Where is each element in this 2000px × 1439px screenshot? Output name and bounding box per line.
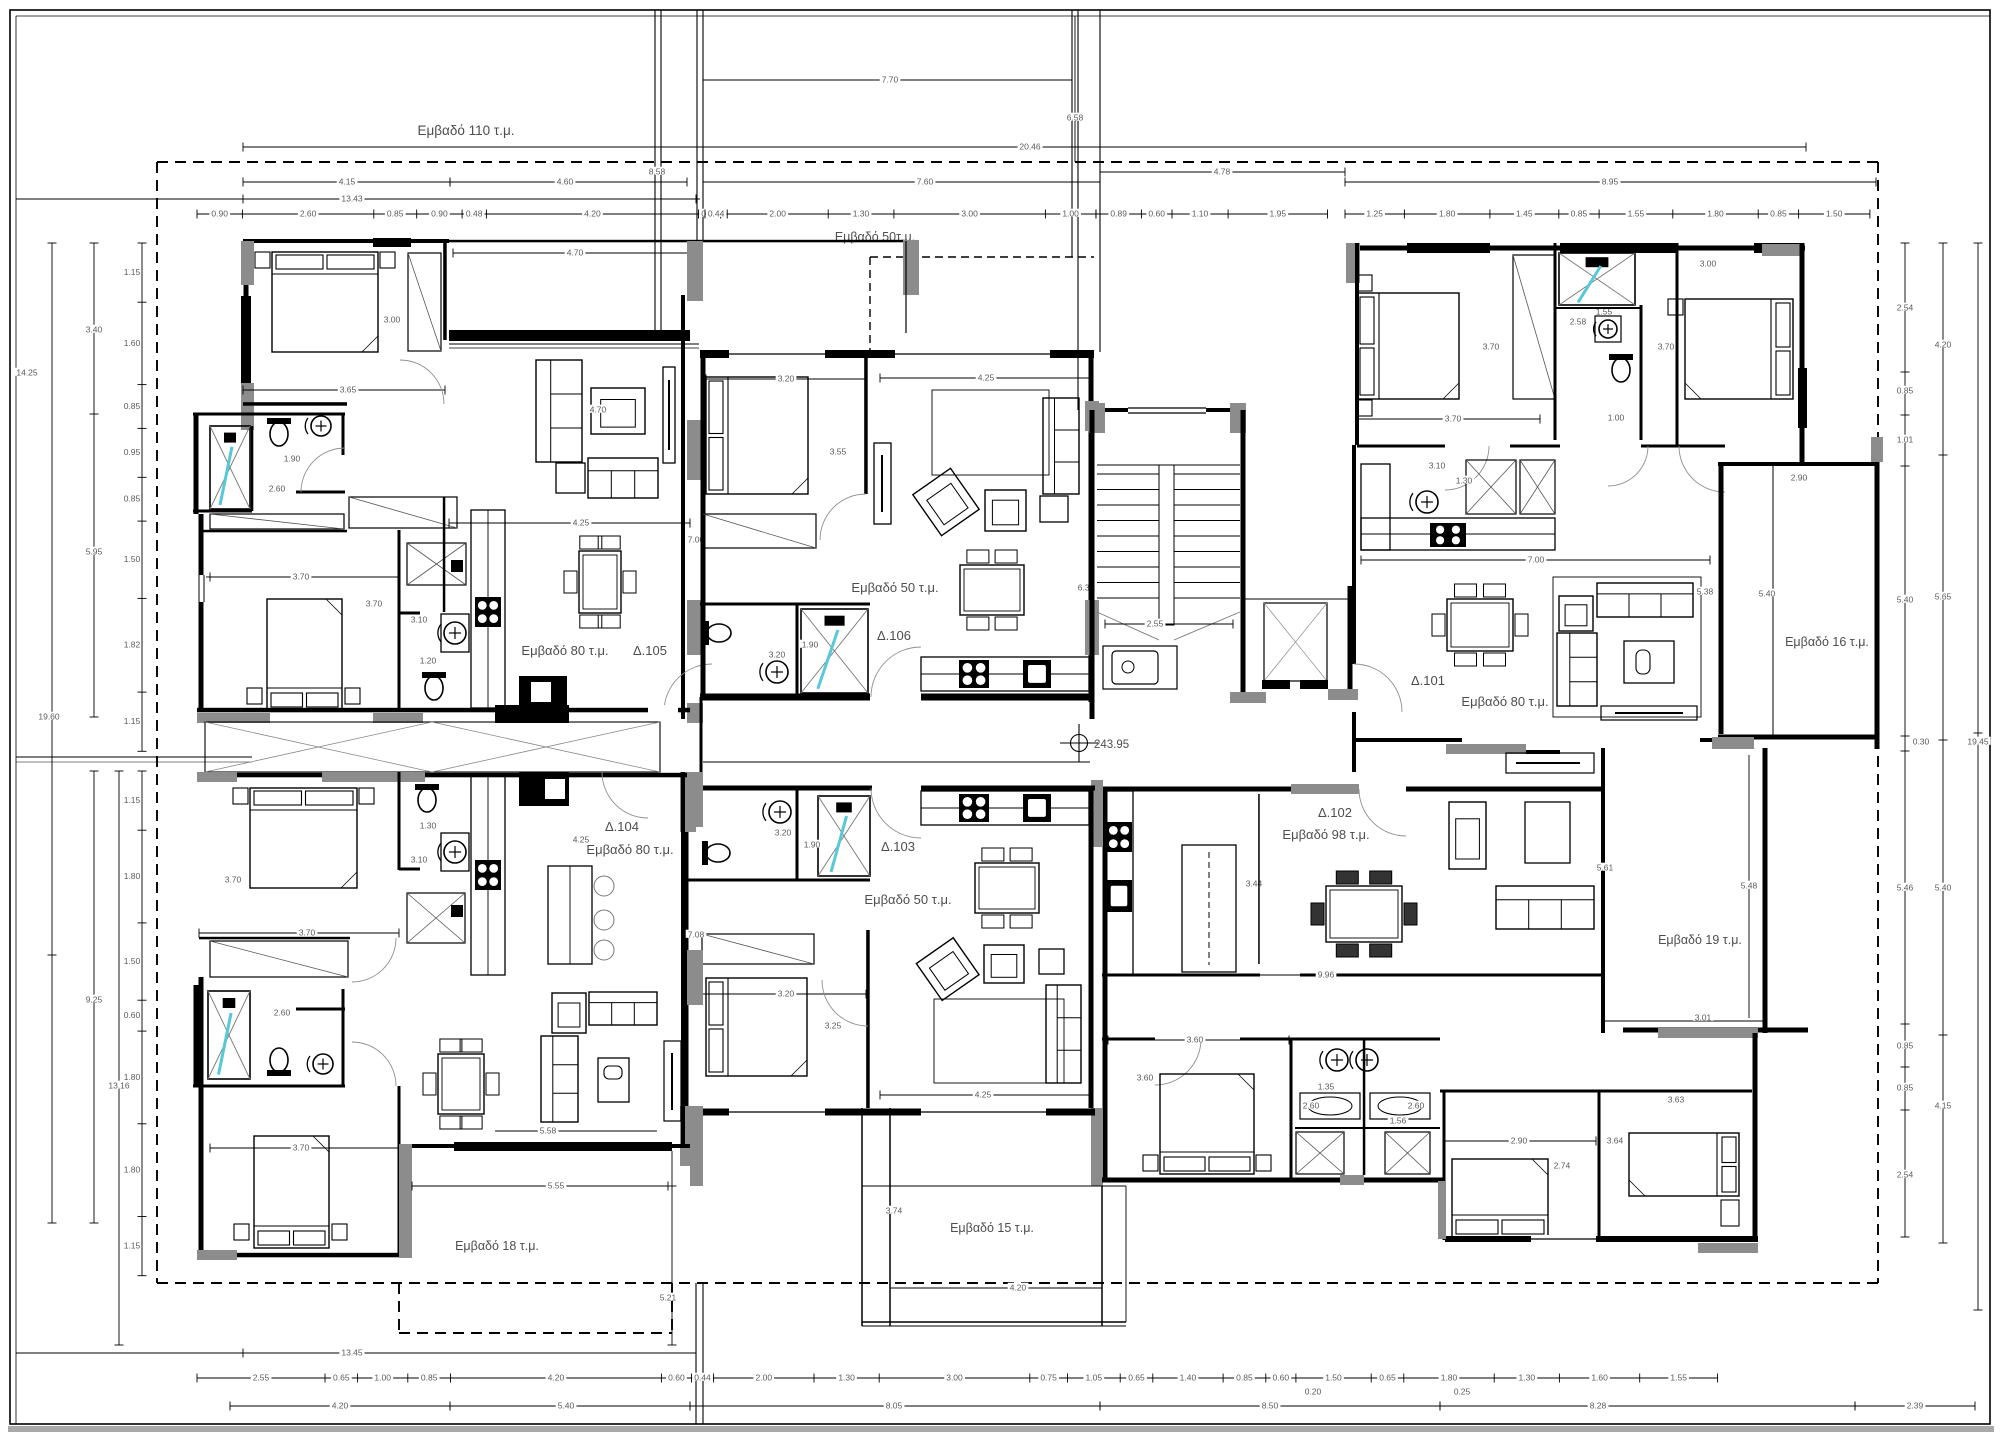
svg-text:8.28: 8.28 (1590, 1400, 1607, 1410)
svg-text:0.65: 0.65 (1128, 1372, 1145, 1382)
svg-text:0.90: 0.90 (431, 208, 448, 218)
svg-text:0.85: 0.85 (1236, 1372, 1253, 1382)
svg-text:3.60: 3.60 (1137, 1072, 1154, 1082)
svg-text:3.70: 3.70 (1483, 341, 1500, 351)
svg-text:8.58: 8.58 (649, 166, 666, 176)
svg-text:4.15: 4.15 (339, 176, 356, 186)
svg-text:Εμβαδό 80 τ.μ.: Εμβαδό 80 τ.μ. (1461, 694, 1548, 709)
svg-text:0.85: 0.85 (124, 401, 141, 411)
svg-text:2.00: 2.00 (756, 1372, 773, 1382)
svg-text:3.55: 3.55 (830, 446, 847, 456)
svg-text:0.30: 0.30 (1913, 736, 1930, 746)
svg-text:3.40: 3.40 (86, 324, 103, 334)
svg-text:243.95: 243.95 (1094, 739, 1129, 751)
svg-text:9.96: 9.96 (1318, 969, 1335, 979)
svg-text:Εμβαδό 19 τ.μ.: Εμβαδό 19 τ.μ. (1658, 933, 1742, 947)
svg-text:4.15: 4.15 (1935, 1100, 1952, 1110)
svg-text:1.50: 1.50 (1826, 208, 1843, 218)
svg-text:Εμβαδό 50 τ.μ.: Εμβαδό 50 τ.μ. (864, 892, 951, 907)
svg-text:4.20: 4.20 (1010, 1282, 1027, 1292)
svg-text:1.80: 1.80 (1707, 208, 1724, 218)
svg-text:3.63: 3.63 (1668, 1094, 1685, 1104)
svg-text:0.25: 0.25 (1454, 1386, 1471, 1396)
svg-text:2.90: 2.90 (1511, 1135, 1528, 1145)
svg-text:4.25: 4.25 (975, 1089, 992, 1099)
svg-text:Δ.103: Δ.103 (881, 839, 915, 854)
svg-text:3.70: 3.70 (1658, 341, 1675, 351)
svg-text:7.08: 7.08 (688, 929, 705, 939)
svg-text:2.55: 2.55 (253, 1372, 270, 1382)
svg-text:1.80: 1.80 (1441, 1372, 1458, 1382)
svg-text:4.60: 4.60 (557, 176, 574, 186)
svg-text:2.58: 2.58 (1570, 316, 1587, 326)
svg-text:5.40: 5.40 (1935, 882, 1952, 892)
svg-text:0.90: 0.90 (211, 208, 228, 218)
svg-text:3.70: 3.70 (293, 1142, 310, 1152)
svg-text:7.00: 7.00 (1528, 554, 1545, 564)
svg-text:3.74: 3.74 (886, 1205, 903, 1215)
svg-text:0.85: 0.85 (124, 494, 141, 504)
svg-text:0.44: 0.44 (708, 208, 725, 218)
svg-text:2.74: 2.74 (1554, 1160, 1571, 1170)
svg-text:Εμβαδό 98 τ.μ.: Εμβαδό 98 τ.μ. (1282, 827, 1369, 842)
svg-text:2.60: 2.60 (1408, 1100, 1425, 1110)
svg-text:5.48: 5.48 (1741, 880, 1758, 890)
svg-text:5.58: 5.58 (540, 1125, 557, 1135)
svg-text:Δ.105: Δ.105 (633, 643, 667, 658)
svg-text:0.85: 0.85 (1897, 1040, 1914, 1050)
svg-text:3.10: 3.10 (1429, 460, 1446, 470)
svg-text:0.85: 0.85 (1897, 1082, 1914, 1092)
svg-text:2.90: 2.90 (1791, 472, 1808, 482)
svg-text:1.55: 1.55 (1670, 1372, 1687, 1382)
svg-text:1.10: 1.10 (1192, 208, 1209, 218)
svg-text:2.60: 2.60 (300, 208, 317, 218)
svg-text:0.85: 0.85 (1897, 385, 1914, 395)
svg-text:1.30: 1.30 (1456, 475, 1473, 485)
svg-text:4.20: 4.20 (584, 208, 601, 218)
svg-text:13.16: 13.16 (108, 1080, 130, 1090)
svg-text:4.78: 4.78 (1214, 166, 1231, 176)
svg-text:0.60: 0.60 (124, 1010, 141, 1020)
svg-text:1.45: 1.45 (1516, 208, 1533, 218)
svg-text:2.39: 2.39 (1907, 1400, 1924, 1410)
svg-text:7.70: 7.70 (882, 74, 899, 84)
svg-text:1.60: 1.60 (1591, 1372, 1608, 1382)
svg-text:1.40: 1.40 (1180, 1372, 1197, 1382)
svg-text:1.30: 1.30 (838, 1372, 855, 1382)
svg-text:1.80: 1.80 (1439, 208, 1456, 218)
svg-text:1.55: 1.55 (1628, 208, 1645, 218)
svg-text:1.50: 1.50 (124, 554, 141, 564)
svg-text:2.54: 2.54 (1897, 302, 1914, 312)
svg-text:20.46: 20.46 (1019, 141, 1041, 151)
svg-text:0.60: 0.60 (668, 1372, 685, 1382)
svg-text:0.60: 0.60 (1148, 208, 1165, 218)
svg-text:5.55: 5.55 (548, 1180, 565, 1190)
svg-text:3.00: 3.00 (946, 1372, 963, 1382)
svg-text:2.60: 2.60 (1303, 1100, 1320, 1110)
svg-text:0.48: 0.48 (466, 208, 483, 218)
svg-text:1.95: 1.95 (1270, 208, 1287, 218)
svg-text:4.20: 4.20 (332, 1400, 349, 1410)
svg-text:0.44: 0.44 (694, 1372, 711, 1382)
svg-text:8.50: 8.50 (1262, 1400, 1279, 1410)
svg-text:19.45: 19.45 (1967, 736, 1989, 746)
svg-text:2.60: 2.60 (269, 483, 286, 493)
svg-text:5.38: 5.38 (1697, 586, 1714, 596)
svg-text:6.58: 6.58 (1067, 112, 1084, 122)
svg-text:0.75: 0.75 (1040, 1372, 1057, 1382)
svg-text:0.20: 0.20 (1305, 1386, 1322, 1396)
svg-text:3.70: 3.70 (366, 598, 383, 608)
svg-text:5.46: 5.46 (1897, 882, 1914, 892)
svg-text:Εμβαδό 50 τ.μ.: Εμβαδό 50 τ.μ. (851, 580, 938, 595)
svg-text:1.01: 1.01 (1897, 434, 1914, 444)
svg-text:9.25: 9.25 (86, 994, 103, 1004)
svg-text:1.35: 1.35 (1318, 1081, 1335, 1091)
svg-text:1.25: 1.25 (1366, 208, 1383, 218)
svg-text:4.25: 4.25 (978, 372, 995, 382)
svg-text:Εμβαδό 18 τ.μ.: Εμβαδό 18 τ.μ. (455, 1239, 539, 1253)
svg-text:5.21: 5.21 (660, 1292, 677, 1302)
svg-text:1.20: 1.20 (420, 655, 437, 665)
svg-text:4.70: 4.70 (590, 404, 607, 414)
svg-text:0.65: 0.65 (333, 1372, 350, 1382)
svg-text:0.60: 0.60 (1273, 1372, 1290, 1382)
svg-text:1.82: 1.82 (124, 640, 141, 650)
svg-text:0.85: 0.85 (1571, 208, 1588, 218)
svg-text:3.20: 3.20 (775, 827, 792, 837)
svg-text:2.55: 2.55 (1147, 618, 1164, 628)
svg-text:0.89: 0.89 (1110, 208, 1127, 218)
svg-text:1.15: 1.15 (124, 716, 141, 726)
svg-text:0.85: 0.85 (1770, 208, 1787, 218)
svg-text:2.54: 2.54 (1897, 1169, 1914, 1179)
svg-text:1.90: 1.90 (802, 639, 819, 649)
svg-text:8.05: 8.05 (886, 1400, 903, 1410)
svg-text:3.20: 3.20 (778, 988, 795, 998)
svg-text:3.60: 3.60 (1187, 1034, 1204, 1044)
svg-text:4.20: 4.20 (548, 1372, 565, 1382)
svg-text:3.25: 3.25 (825, 1020, 842, 1030)
svg-text:5.95: 5.95 (86, 546, 103, 556)
svg-text:0.85: 0.85 (421, 1372, 438, 1382)
svg-text:1.90: 1.90 (284, 453, 301, 463)
svg-text:Δ.102: Δ.102 (1318, 805, 1352, 820)
svg-text:3.70: 3.70 (225, 874, 242, 884)
svg-text:2.60: 2.60 (274, 1007, 291, 1017)
svg-text:3.20: 3.20 (769, 649, 786, 659)
svg-text:1.30: 1.30 (853, 208, 870, 218)
svg-text:5.40: 5.40 (1897, 594, 1914, 604)
svg-text:19.60: 19.60 (38, 711, 60, 721)
svg-text:5.65: 5.65 (1935, 591, 1952, 601)
svg-text:13.43: 13.43 (341, 193, 363, 203)
svg-text:Δ.106: Δ.106 (877, 628, 911, 643)
svg-text:Εμβαδό 15 τ.μ.: Εμβαδό 15 τ.μ. (950, 1221, 1034, 1235)
svg-text:3.70: 3.70 (1445, 413, 1462, 423)
svg-text:1.15: 1.15 (124, 267, 141, 277)
svg-text:1.15: 1.15 (124, 1241, 141, 1251)
svg-text:Εμβαδό 80 τ.μ.: Εμβαδό 80 τ.μ. (586, 842, 673, 857)
svg-text:14.25: 14.25 (16, 367, 38, 377)
svg-text:5.61: 5.61 (1597, 862, 1614, 872)
svg-text:4.25: 4.25 (573, 517, 590, 527)
svg-text:3.10: 3.10 (411, 614, 428, 624)
svg-text:3.01: 3.01 (1695, 1012, 1712, 1022)
svg-text:1.30: 1.30 (1519, 1372, 1536, 1382)
svg-text:1.50: 1.50 (1325, 1372, 1342, 1382)
svg-text:1.15: 1.15 (124, 795, 141, 805)
svg-text:1.00: 1.00 (1062, 208, 1079, 218)
svg-text:4.20: 4.20 (1935, 339, 1952, 349)
svg-text:1.80: 1.80 (124, 1165, 141, 1175)
svg-text:1.00: 1.00 (1608, 412, 1625, 422)
svg-text:1.80: 1.80 (124, 1072, 141, 1082)
svg-text:3.10: 3.10 (411, 854, 428, 864)
svg-text:3.70: 3.70 (293, 571, 310, 581)
svg-text:1.05: 1.05 (1086, 1372, 1103, 1382)
svg-text:3.70: 3.70 (299, 927, 316, 937)
svg-text:3.20: 3.20 (778, 373, 795, 383)
svg-text:3.00: 3.00 (384, 314, 401, 324)
svg-text:4.70: 4.70 (567, 247, 584, 257)
svg-text:8.95: 8.95 (1602, 176, 1619, 186)
svg-text:0.65: 0.65 (1379, 1372, 1396, 1382)
svg-text:Εμβαδό 80 τ.μ.: Εμβαδό 80 τ.μ. (521, 643, 608, 658)
svg-text:3.64: 3.64 (1607, 1135, 1624, 1145)
svg-text:1.00: 1.00 (374, 1372, 391, 1382)
svg-text:Εμβαδό 110 τ.μ.: Εμβαδό 110 τ.μ. (417, 123, 514, 138)
svg-text:2.00: 2.00 (769, 208, 786, 218)
svg-text:0.95: 0.95 (124, 447, 141, 457)
svg-text:5.40: 5.40 (1759, 588, 1776, 598)
svg-text:5.40: 5.40 (558, 1400, 575, 1410)
svg-text:3.65: 3.65 (340, 384, 357, 394)
svg-text:1.50: 1.50 (124, 956, 141, 966)
svg-text:3.44: 3.44 (1246, 878, 1263, 888)
svg-text:1.90: 1.90 (804, 839, 821, 849)
svg-text:3.00: 3.00 (1700, 258, 1717, 268)
svg-text:1.80: 1.80 (124, 871, 141, 881)
svg-text:Δ.104: Δ.104 (605, 819, 639, 834)
svg-text:13.45: 13.45 (341, 1347, 363, 1357)
svg-text:Δ.101: Δ.101 (1411, 673, 1445, 688)
svg-text:1.60: 1.60 (124, 338, 141, 348)
svg-text:7.60: 7.60 (917, 176, 934, 186)
svg-text:1.30: 1.30 (420, 820, 437, 830)
svg-text:3.00: 3.00 (961, 208, 978, 218)
svg-text:1.56: 1.56 (1390, 1115, 1407, 1125)
svg-text:Εμβαδό 16 τ.μ.: Εμβαδό 16 τ.μ. (1785, 635, 1869, 649)
svg-text:0.85: 0.85 (387, 208, 404, 218)
